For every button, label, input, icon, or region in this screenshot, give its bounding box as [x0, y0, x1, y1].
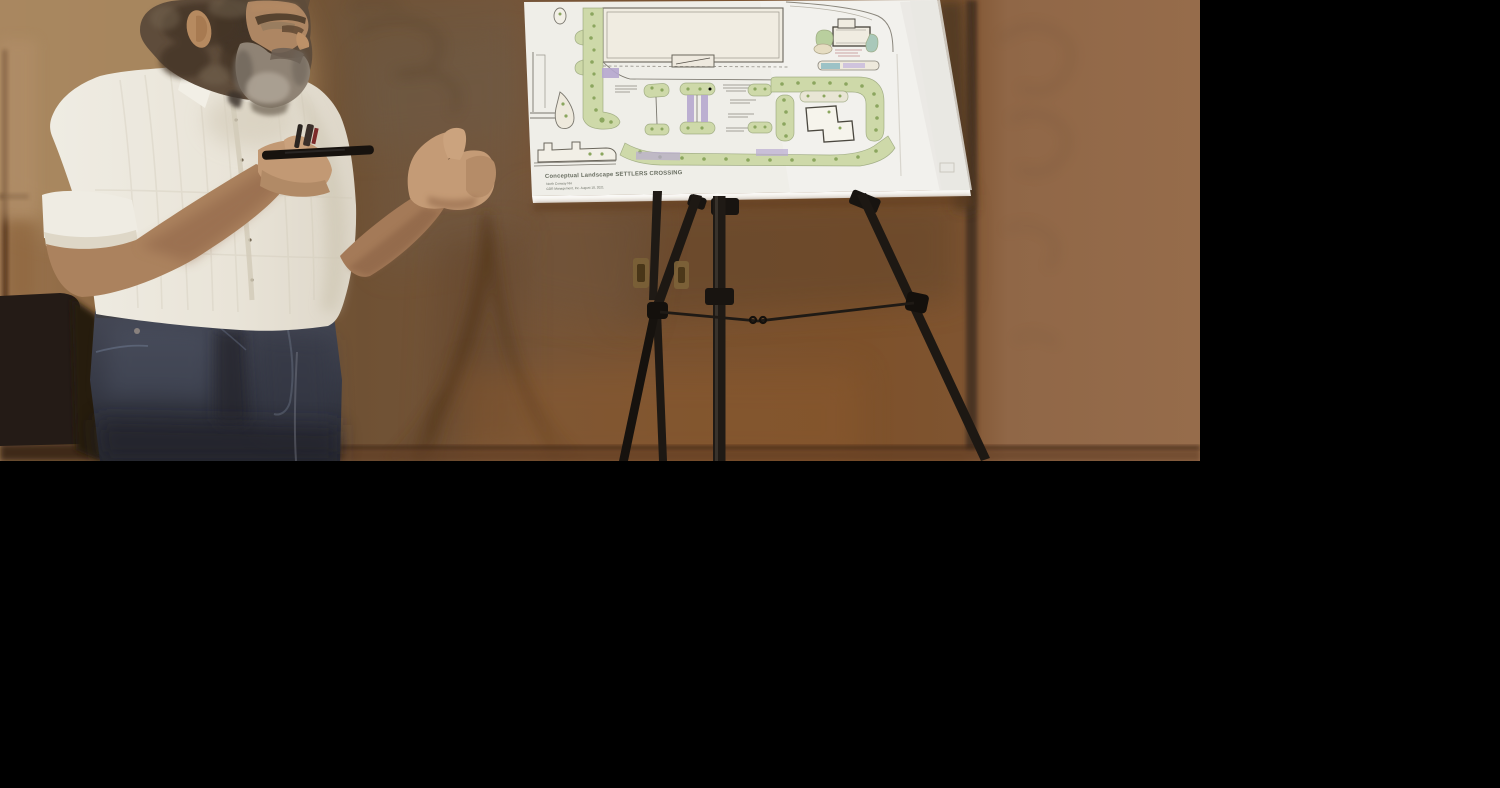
svg-text:North Conway NH: North Conway NH [546, 181, 572, 186]
